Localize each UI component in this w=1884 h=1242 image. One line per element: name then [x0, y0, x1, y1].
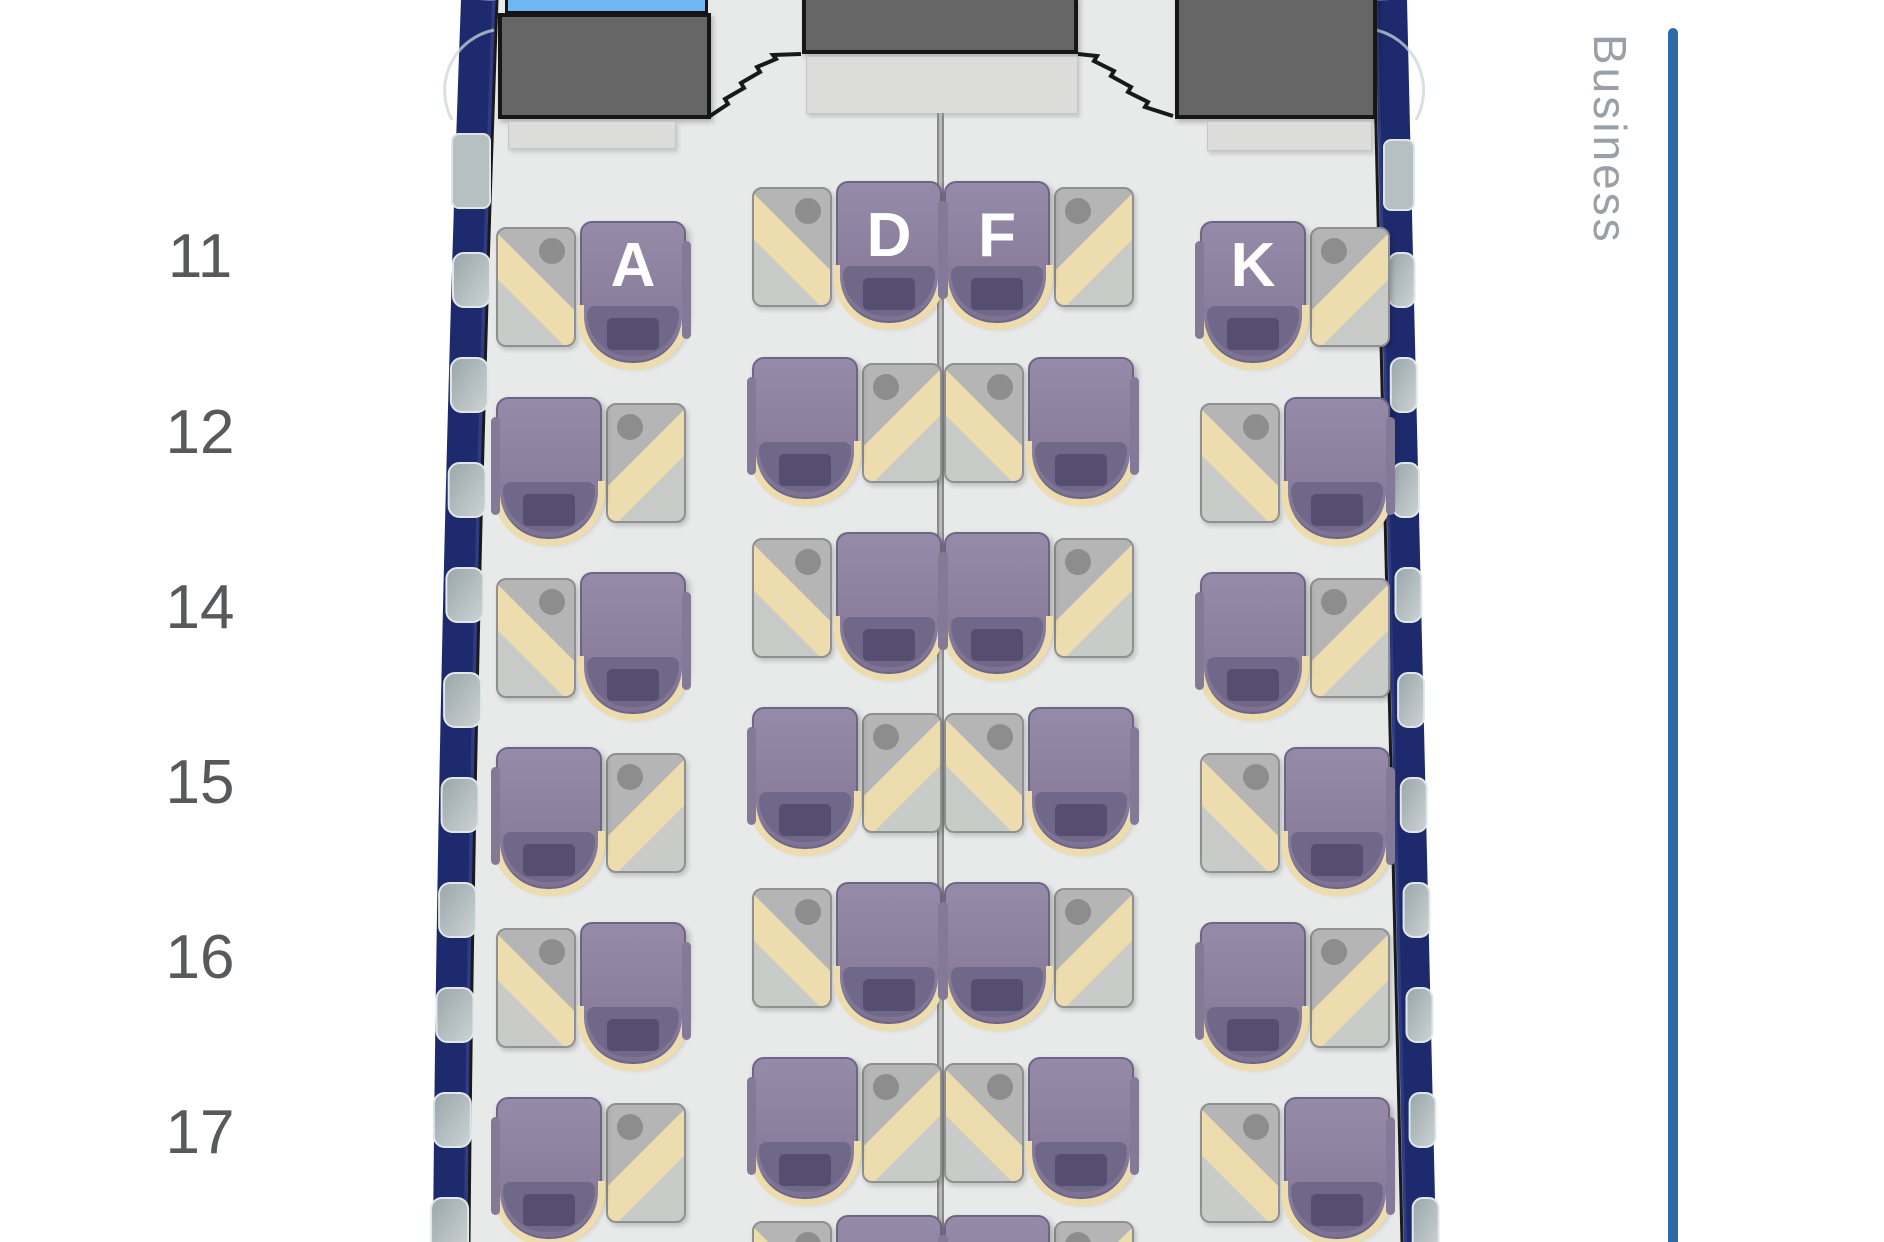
seat-unit-15-F — [944, 707, 1134, 857]
seat-unit-11-K: K — [1200, 221, 1390, 371]
seat-side-table — [496, 227, 576, 347]
seat-14F[interactable] — [944, 532, 1050, 674]
cupholder-icon — [539, 238, 565, 264]
seat-unit-16-F — [944, 882, 1134, 1032]
cupholder-icon — [1243, 764, 1269, 790]
seat-side-table — [862, 1063, 942, 1183]
seat-16K[interactable] — [1200, 922, 1306, 1064]
cabin-class-label: Business — [1583, 34, 1637, 245]
galley-front-right — [1175, 0, 1377, 119]
seat-17D[interactable] — [752, 1057, 858, 1199]
seat-15A[interactable] — [496, 747, 602, 889]
seat-side-table — [944, 1063, 1024, 1183]
seat-side-table — [1310, 928, 1390, 1048]
seat-12K[interactable] — [1284, 397, 1390, 539]
seat-unit-17-D — [752, 1057, 942, 1207]
cupholder-icon — [539, 589, 565, 615]
seat-14D[interactable] — [836, 532, 942, 674]
cupholder-icon — [1321, 589, 1347, 615]
seat-side-table — [606, 753, 686, 873]
seat-unit-15-A — [496, 747, 686, 897]
seat-unit-11-F: F — [944, 181, 1134, 331]
seat-side-table — [752, 888, 832, 1008]
seat-side-table — [944, 363, 1024, 483]
cupholder-icon — [795, 1232, 821, 1242]
seat-unit-15-K — [1200, 747, 1390, 897]
cupholder-icon — [873, 374, 899, 400]
seat-side-table — [496, 928, 576, 1048]
seat-aftF[interactable] — [944, 1215, 1050, 1242]
cabin-window — [439, 883, 476, 937]
galley-front-center — [802, 0, 1078, 54]
row-label-12: 12 — [140, 401, 260, 465]
galley-front-left — [498, 13, 711, 119]
row-label-17: 17 — [140, 1101, 260, 1165]
cupholder-icon — [1321, 939, 1347, 965]
seat-unit-17-F — [944, 1057, 1134, 1207]
row-label-14: 14 — [140, 576, 260, 640]
seat-17A[interactable] — [496, 1097, 602, 1239]
seat-side-table — [606, 403, 686, 523]
seat-unit-17-K — [1200, 1097, 1390, 1242]
cabin-window — [1393, 463, 1419, 517]
seat-side-table — [752, 187, 832, 307]
cupholder-icon — [987, 374, 1013, 400]
seat-14K[interactable] — [1200, 572, 1306, 714]
seat-unit-12-K — [1200, 397, 1390, 547]
seat-15D[interactable] — [752, 707, 858, 849]
row-label-16: 16 — [140, 926, 260, 990]
seat-12F[interactable] — [1028, 357, 1134, 499]
seat-11A[interactable]: A — [580, 221, 686, 363]
seat-side-table — [1054, 187, 1134, 307]
seat-12D[interactable] — [752, 357, 858, 499]
seat-side-table — [862, 713, 942, 833]
seat-16D[interactable] — [836, 882, 942, 1024]
cupholder-icon — [1243, 414, 1269, 440]
seat-15F[interactable] — [1028, 707, 1134, 849]
seat-unit-aft-D — [752, 1215, 942, 1242]
exit-door-left — [452, 134, 490, 208]
seat-side-table — [496, 578, 576, 698]
seat-unit-17-A — [496, 1097, 686, 1242]
cupholder-icon — [539, 939, 565, 965]
seat-11F[interactable]: F — [944, 181, 1050, 323]
cabin-window — [453, 253, 490, 307]
seat-side-table — [1200, 1103, 1280, 1223]
seat-map: 11ADFK1214151617 Business — [0, 0, 1884, 1242]
seat-side-table — [1310, 578, 1390, 698]
seat-side-table — [752, 1221, 832, 1242]
seat-11K[interactable]: K — [1200, 221, 1306, 363]
cabin-window — [1404, 883, 1430, 937]
cabin-window — [1407, 988, 1433, 1042]
boarding-door-galley-top — [505, 0, 708, 14]
cabin-window — [1389, 253, 1415, 307]
cabin-window — [1410, 1093, 1436, 1147]
seat-15K[interactable] — [1284, 747, 1390, 889]
cabin-window — [431, 1198, 468, 1242]
seat-side-table — [752, 538, 832, 658]
cupholder-icon — [1065, 1232, 1091, 1242]
seat-unit-aft-F — [944, 1215, 1134, 1242]
seat-side-table — [1054, 888, 1134, 1008]
seat-side-table — [606, 1103, 686, 1223]
cabin-window — [434, 1093, 471, 1147]
cupholder-icon — [987, 724, 1013, 750]
seat-unit-12-A — [496, 397, 686, 547]
cupholder-icon — [617, 414, 643, 440]
cupholder-icon — [795, 899, 821, 925]
seat-17K[interactable] — [1284, 1097, 1390, 1239]
seat-14A[interactable] — [580, 572, 686, 714]
cupholder-icon — [873, 1074, 899, 1100]
cabin-window — [1391, 358, 1417, 412]
cabin-window — [446, 568, 483, 622]
cupholder-icon — [795, 549, 821, 575]
cabin-window — [1398, 673, 1424, 727]
seat-aftD[interactable] — [836, 1215, 942, 1242]
cabin-class-extent-line — [1668, 28, 1678, 1242]
seat-side-table — [1200, 753, 1280, 873]
exit-door-right — [1384, 140, 1414, 210]
seat-17F[interactable] — [1028, 1057, 1134, 1199]
seat-unit-16-A — [496, 922, 686, 1072]
seat-letter-K: K — [1202, 235, 1304, 297]
cupholder-icon — [1065, 198, 1091, 224]
seat-letter-D: D — [838, 205, 940, 267]
cabin-window — [437, 988, 474, 1042]
seat-letter-F: F — [946, 205, 1048, 267]
seat-12A[interactable] — [496, 397, 602, 539]
cabin-window — [449, 463, 486, 517]
cupholder-icon — [617, 1114, 643, 1140]
seat-unit-11-A: A — [496, 221, 686, 371]
counter-front-left — [508, 121, 676, 149]
row-label-11: 11 — [140, 225, 260, 289]
cupholder-icon — [1065, 549, 1091, 575]
cabin-window — [1401, 778, 1427, 832]
seat-11D[interactable]: D — [836, 181, 942, 323]
seat-unit-11-D: D — [752, 181, 942, 331]
seat-side-table — [1054, 1221, 1134, 1242]
seat-unit-14-A — [496, 572, 686, 722]
seat-side-table — [944, 713, 1024, 833]
seat-16A[interactable] — [580, 922, 686, 1064]
cabin-window — [451, 358, 488, 412]
seat-16F[interactable] — [944, 882, 1050, 1024]
cupholder-icon — [1321, 238, 1347, 264]
seat-side-table — [862, 363, 942, 483]
seat-unit-16-D — [752, 882, 942, 1032]
seat-letter-A: A — [582, 235, 684, 297]
cabin-window — [1413, 1198, 1439, 1242]
cabin-window — [1396, 568, 1422, 622]
seat-unit-12-F — [944, 357, 1134, 507]
counter-front-right — [1207, 121, 1372, 151]
cabin-window — [444, 673, 481, 727]
cupholder-icon — [873, 724, 899, 750]
seat-unit-14-K — [1200, 572, 1390, 722]
cupholder-icon — [617, 764, 643, 790]
seat-side-table — [1200, 403, 1280, 523]
seat-unit-14-D — [752, 532, 942, 682]
counter-front-center — [806, 56, 1078, 114]
seat-unit-15-D — [752, 707, 942, 857]
cupholder-icon — [1243, 1114, 1269, 1140]
cabin-window — [442, 778, 479, 832]
seat-side-table — [1054, 538, 1134, 658]
cupholder-icon — [795, 198, 821, 224]
seat-unit-14-F — [944, 532, 1134, 682]
row-label-15: 15 — [140, 751, 260, 815]
cupholder-icon — [987, 1074, 1013, 1100]
seat-unit-16-K — [1200, 922, 1390, 1072]
cupholder-icon — [1065, 899, 1091, 925]
seat-unit-12-D — [752, 357, 942, 507]
seat-side-table — [1310, 227, 1390, 347]
